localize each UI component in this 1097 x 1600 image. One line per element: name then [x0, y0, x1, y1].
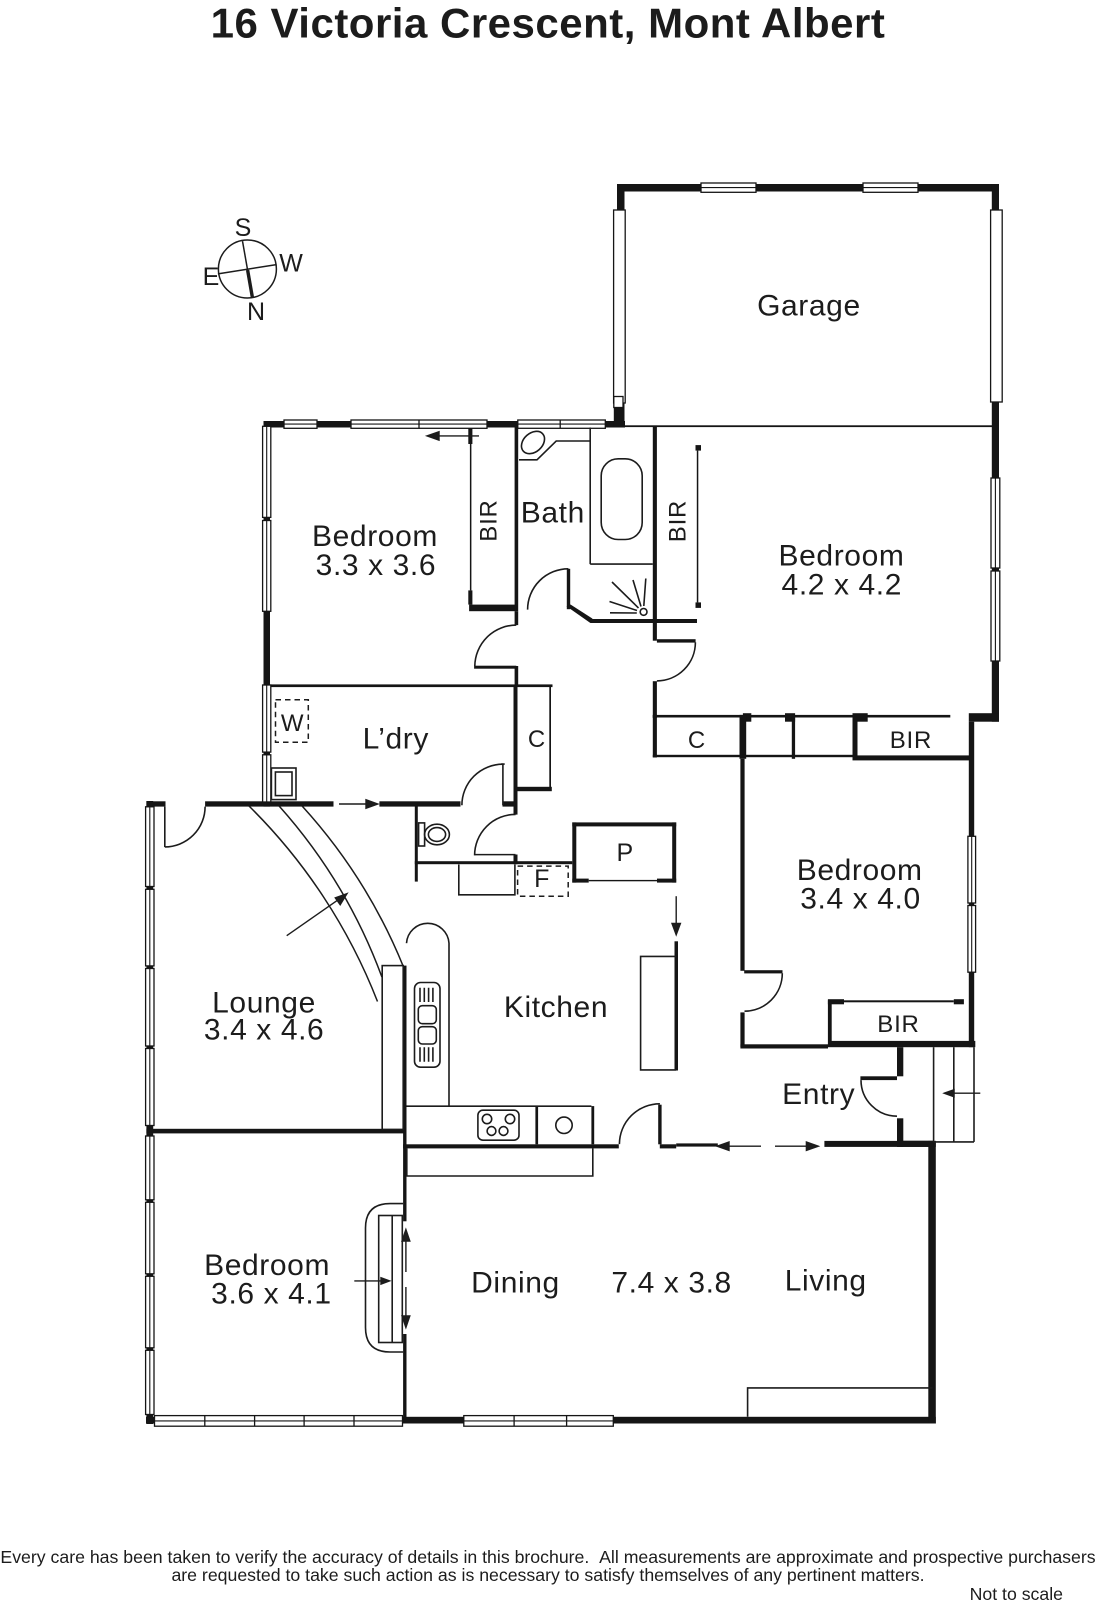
svg-text:S: S	[235, 214, 252, 242]
svg-text:C: C	[688, 727, 706, 754]
svg-text:C: C	[528, 726, 546, 753]
svg-text:P: P	[616, 839, 633, 867]
svg-text:Entry: Entry	[782, 1078, 855, 1111]
svg-text:F: F	[534, 865, 550, 893]
svg-text:Bath: Bath	[521, 497, 585, 530]
svg-text:Every care has been taken to v: Every care has been taken to verify the …	[0, 1547, 1095, 1567]
svg-text:16 Victoria Crescent, Mont Alb: 16 Victoria Crescent, Mont Albert	[211, 0, 886, 47]
svg-text:4.2 x 4.2: 4.2 x 4.2	[782, 568, 902, 601]
svg-text:3.6 x 4.1: 3.6 x 4.1	[211, 1278, 331, 1311]
svg-text:Kitchen: Kitchen	[504, 991, 608, 1024]
svg-text:BIR: BIR	[890, 727, 932, 754]
svg-text:L’dry: L’dry	[363, 722, 429, 755]
svg-text:3.4 x 4.0: 3.4 x 4.0	[800, 882, 920, 915]
svg-text:Garage: Garage	[757, 290, 861, 323]
svg-text:BIR: BIR	[665, 500, 692, 542]
svg-text:W: W	[281, 710, 304, 737]
svg-text:BIR: BIR	[877, 1011, 919, 1038]
svg-text:BIR: BIR	[476, 499, 503, 541]
svg-text:7.4 x 3.8: 7.4 x 3.8	[611, 1267, 731, 1300]
svg-text:Not to scale: Not to scale	[970, 1584, 1064, 1600]
svg-text:3.4 x 4.6: 3.4 x 4.6	[204, 1013, 324, 1046]
svg-text:E: E	[203, 263, 220, 291]
svg-text:N: N	[247, 298, 265, 326]
svg-text:W: W	[279, 250, 303, 278]
svg-text:Dining: Dining	[471, 1267, 560, 1300]
svg-text:Living: Living	[785, 1265, 867, 1298]
svg-text:3.3 x 3.6: 3.3 x 3.6	[316, 549, 436, 582]
svg-text:are requested to take such act: are requested to take such action as is …	[171, 1565, 924, 1585]
